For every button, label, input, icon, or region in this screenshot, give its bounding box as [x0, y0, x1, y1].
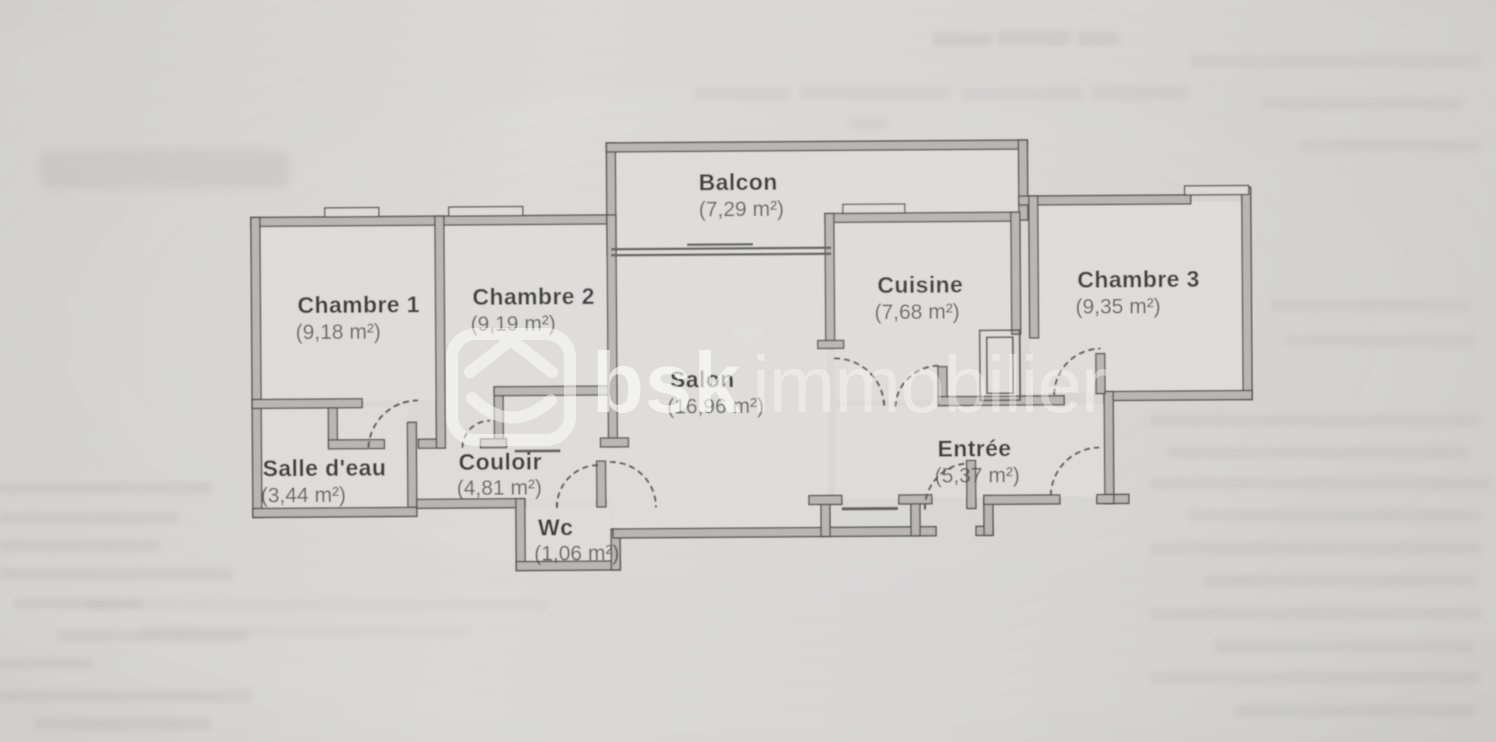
window-chambre-2 [449, 207, 523, 217]
room-label-couloir: Couloir (4,81 m²) [456, 448, 542, 500]
scanned-floor-plan-page: Balcon (7,29 m²) Chambre 1 (9,18 m²) Cha… [0, 0, 1496, 742]
wc-name: Wc [538, 514, 573, 540]
cuisine-name: Cuisine [877, 272, 963, 299]
chambre-2-name: Chambre 2 [472, 283, 595, 310]
balcon-name: Balcon [699, 169, 778, 196]
window-cuisine [843, 204, 905, 213]
chambre-3-area: (9,35 m²) [1075, 295, 1160, 319]
window-chambre-1 [325, 208, 379, 217]
watermark-brand-bold: bsk [592, 336, 741, 431]
room-balcon [615, 149, 1018, 222]
wc-area: (1,06 m²) [534, 542, 619, 566]
salle-deau-name: Salle d'eau [263, 455, 387, 482]
entree-name: Entrée [937, 435, 1011, 462]
window-chambre-3 [1185, 186, 1249, 195]
certified-stamp-bleed-through [40, 150, 290, 188]
floor-plan-canvas: Balcon (7,29 m²) Chambre 1 (9,18 m²) Cha… [0, 0, 1496, 742]
balcon-area: (7,29 m²) [699, 198, 784, 222]
salle-deau-area: (3,44 m²) [261, 484, 346, 508]
watermark-brand-light: immobilier [752, 340, 1107, 429]
couloir-name: Couloir [458, 448, 541, 475]
entree-area: (5,37 m²) [935, 464, 1020, 488]
couloir-area: (4,81 m²) [457, 476, 542, 500]
chambre-1-name: Chambre 1 [297, 291, 420, 318]
cuisine-area: (7,68 m²) [874, 301, 959, 325]
chambre-3-name: Chambre 3 [1077, 266, 1200, 293]
chambre-1-area: (9,18 m²) [296, 321, 381, 345]
